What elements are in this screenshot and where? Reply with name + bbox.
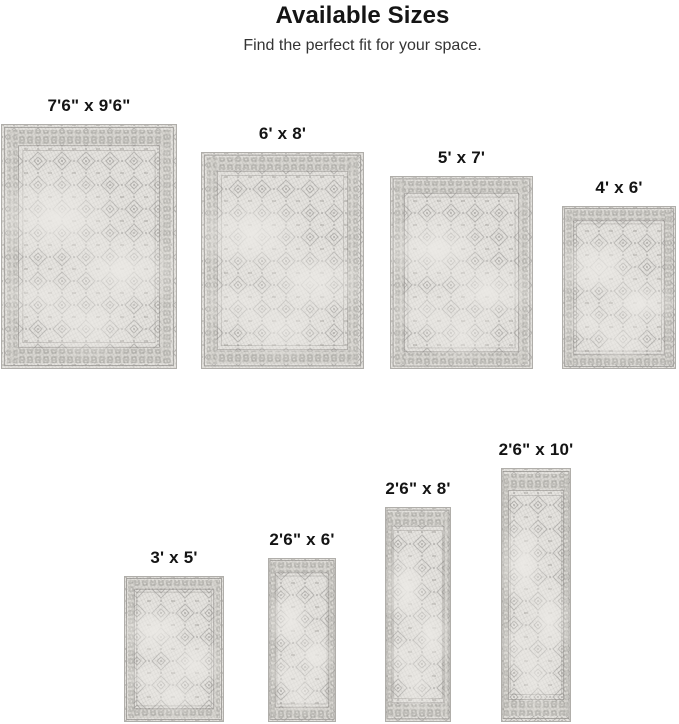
rug-distress-overlay — [269, 559, 335, 721]
rug-item-2-6x10: 2'6" x 10' — [501, 468, 571, 722]
rug-distress-overlay — [502, 469, 570, 721]
rug-size-label: 2'6" x 10' — [499, 440, 574, 460]
rug-distress-overlay — [125, 577, 223, 721]
rug-item-2-6x6: 2'6" x 6' — [268, 558, 336, 722]
rug-distress-overlay — [2, 125, 176, 368]
rug-image-4x6 — [562, 206, 676, 369]
rug-image-5x7 — [390, 176, 533, 369]
section-header: Available Sizes Find the perfect fit for… — [46, 0, 679, 58]
rug-image-7-6x9-6 — [1, 124, 177, 369]
rug-image-6x8 — [201, 152, 364, 369]
rug-image-2-6x6 — [268, 558, 336, 722]
section-subtitle: Find the perfect fit for your space. — [46, 34, 679, 58]
rug-size-label: 5' x 7' — [438, 148, 485, 168]
section-title: Available Sizes — [46, 0, 679, 32]
rug-item-5x7: 5' x 7' — [390, 176, 533, 369]
rug-size-label: 6' x 8' — [259, 124, 306, 144]
available-sizes-section: Available Sizes Find the perfect fit for… — [0, 0, 679, 724]
rug-size-label: 3' x 5' — [150, 548, 197, 568]
rug-size-label: 4' x 6' — [595, 178, 642, 198]
rug-item-2-6x8: 2'6" x 8' — [385, 507, 451, 722]
rug-item-6x8: 6' x 8' — [201, 152, 364, 369]
rug-distress-overlay — [202, 153, 363, 368]
rug-item-4x6: 4' x 6' — [562, 206, 676, 369]
rug-image-2-6x8 — [385, 507, 451, 722]
rug-distress-overlay — [563, 207, 675, 368]
rug-image-3x5 — [124, 576, 224, 722]
rug-image-2-6x10 — [501, 468, 571, 722]
rug-size-label: 7'6" x 9'6" — [47, 96, 130, 116]
rug-item-7-6x9-6: 7'6" x 9'6" — [1, 124, 177, 369]
rug-distress-overlay — [391, 177, 532, 368]
rug-size-label: 2'6" x 8' — [385, 479, 450, 499]
rug-size-label: 2'6" x 6' — [269, 530, 334, 550]
rug-distress-overlay — [386, 508, 450, 721]
rug-item-3x5: 3' x 5' — [124, 576, 224, 722]
